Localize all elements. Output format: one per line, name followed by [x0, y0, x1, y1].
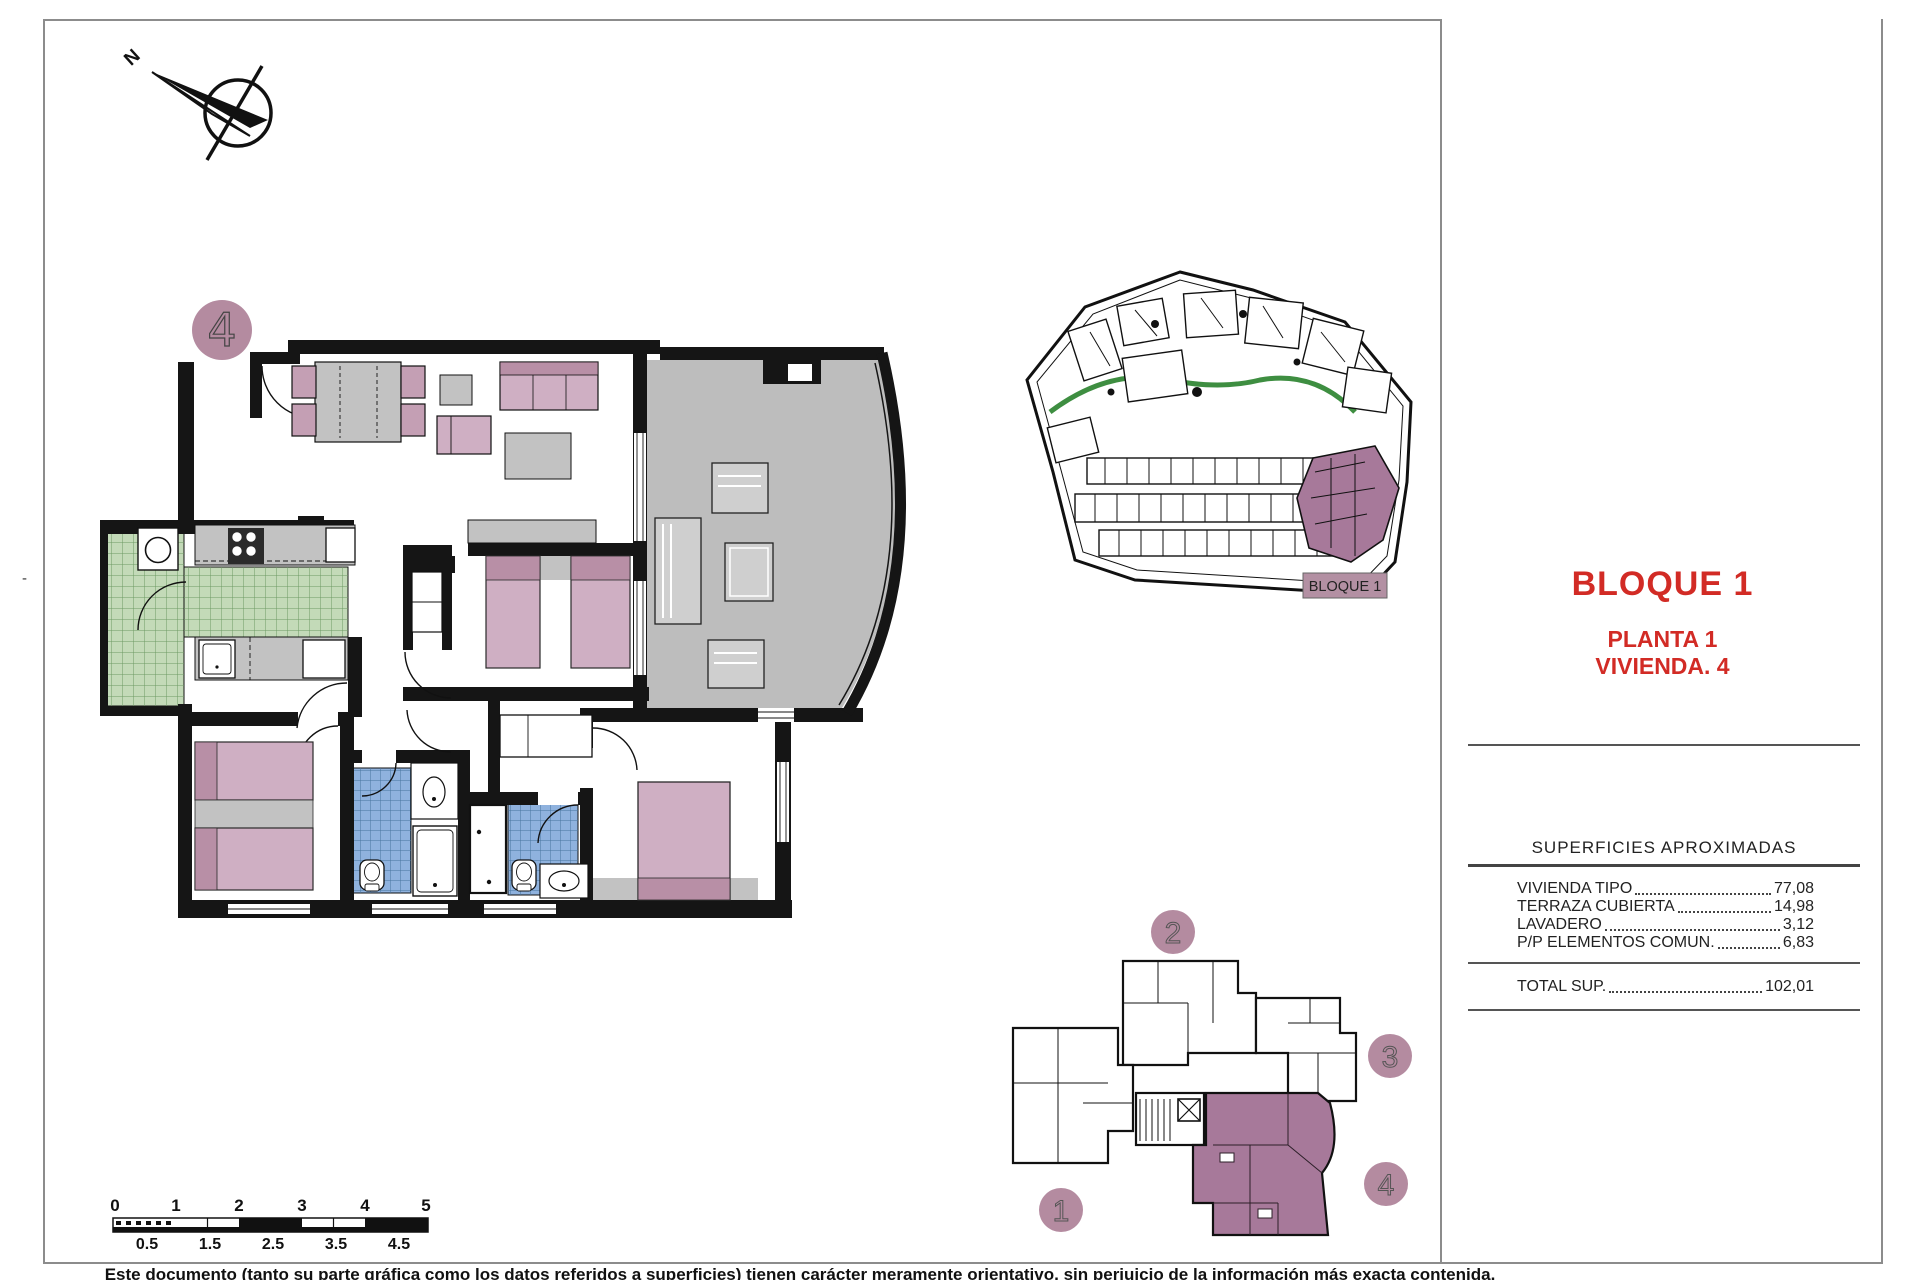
apartment-floor-plan: 4	[100, 300, 915, 945]
unit-badge-number: 4	[207, 303, 236, 357]
scale-label: 1	[171, 1196, 180, 1215]
surfaces-rule-top	[1468, 864, 1860, 867]
title-block: BLOQUE 1 PLANTA 1 VIVIENDA. 4	[1444, 566, 1881, 680]
scale-label: 4.5	[388, 1236, 410, 1253]
table-row: TERRAZA CUBIERTA 14,98	[1517, 898, 1814, 916]
row-label: VIVIENDA TIPO	[1517, 880, 1632, 898]
row-label: LAVADERO	[1517, 916, 1602, 934]
disclaimer-text: Este documento (tanto su parte gráfica c…	[30, 1265, 1570, 1280]
leader-dots	[1718, 947, 1780, 949]
margin-tick: -	[22, 570, 27, 587]
scale-label: 5	[421, 1196, 430, 1215]
kitchen-floor	[184, 567, 348, 637]
table-row: LAVADERO 3,12	[1517, 916, 1814, 934]
surfaces-rule-bottom	[1468, 1009, 1860, 1011]
badge-1: 1	[1053, 1195, 1070, 1228]
scale-label: 3	[297, 1196, 306, 1215]
site-plan-label: BLOQUE 1	[1309, 579, 1382, 595]
scale-bar: 0 1 2 3 4 5 0.5 1.5 2.5 3.5 4.5	[108, 1185, 438, 1257]
table-row: P/P ELEMENTOS COMUN. 6,83	[1517, 934, 1814, 952]
badge-3: 3	[1382, 1041, 1399, 1074]
leader-dots	[1635, 893, 1771, 895]
row-label: TERRAZA CUBIERTA	[1517, 898, 1675, 916]
sink	[199, 640, 235, 678]
scale-label: 4	[360, 1196, 370, 1215]
row-value: 6,83	[1783, 934, 1814, 952]
surfaces-header: SUPERFICIES APROXIMADAS	[1468, 838, 1860, 858]
total-label: TOTAL SUP.	[1517, 978, 1606, 996]
washer	[138, 528, 178, 570]
plan-sheet: N -	[0, 0, 1920, 1280]
total-row: TOTAL SUP. 102,01	[1517, 978, 1814, 996]
sheet-bottom-border	[1442, 1262, 1883, 1264]
row-value: 3,12	[1783, 916, 1814, 934]
surfaces-table: SUPERFICIES APROXIMADAS VIVIENDA TIPO 77…	[1468, 838, 1860, 1011]
key-plan: 1 2 3 4	[988, 903, 1423, 1253]
scale-label: 0.5	[136, 1236, 158, 1253]
leader-dots	[1605, 929, 1780, 931]
block-title: BLOQUE 1	[1444, 566, 1881, 602]
scale-label: 1.5	[199, 1236, 221, 1253]
planta-subtitle: PLANTA 1	[1444, 626, 1881, 653]
site-plan: BLOQUE 1	[1015, 262, 1425, 610]
surfaces-rows: VIVIENDA TIPO 77,08 TERRAZA CUBIERTA 14,…	[1517, 880, 1814, 952]
row-value: 14,98	[1774, 898, 1814, 916]
table-row: VIVIENDA TIPO 77,08	[1517, 880, 1814, 898]
badge-2: 2	[1165, 917, 1182, 950]
scale-label: 2.5	[262, 1236, 284, 1253]
row-value: 77,08	[1774, 880, 1814, 898]
leader-dots	[1678, 911, 1771, 913]
total-value: 102,01	[1765, 978, 1814, 996]
row-label: P/P ELEMENTOS COMUN.	[1517, 934, 1715, 952]
leader-dots	[1609, 991, 1762, 993]
scale-label: 0	[110, 1196, 119, 1215]
badge-4: 4	[1378, 1169, 1395, 1202]
north-label: N	[120, 45, 144, 70]
north-arrow-icon: N	[100, 40, 285, 175]
vivienda-subtitle: VIVIENDA. 4	[1444, 653, 1881, 680]
scale-label: 2	[234, 1196, 243, 1215]
sheet-right-border	[1881, 19, 1883, 1264]
surfaces-rule-mid	[1468, 962, 1860, 964]
scale-label: 3.5	[325, 1236, 347, 1253]
panel-divider-rule	[1468, 744, 1860, 746]
